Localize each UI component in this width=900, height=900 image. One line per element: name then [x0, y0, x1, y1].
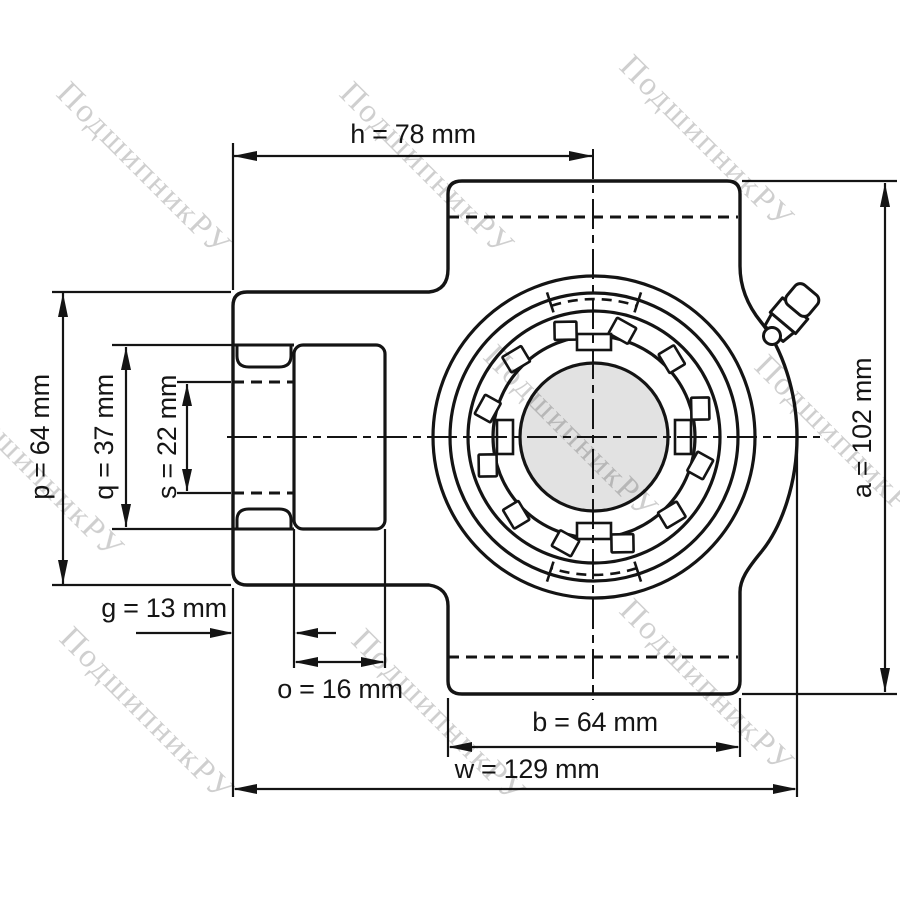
- dimension-label-b: b = 64 mm: [532, 707, 658, 737]
- technical-drawing: h = 78 mm a = 102 mm p = 64 mm q = 37 mm…: [0, 0, 900, 900]
- dimension-label-g: g = 13 mm: [101, 593, 227, 623]
- lock-washer-tab: [554, 322, 576, 340]
- drawing-canvas: h = 78 mm a = 102 mm p = 64 mm q = 37 mm…: [0, 0, 900, 900]
- dimension-label-q: q = 37 mm: [89, 374, 119, 500]
- dimension-label-s: s = 22 mm: [152, 375, 182, 499]
- lock-washer-tab: [691, 397, 709, 419]
- lock-washer-tab: [611, 534, 633, 552]
- lock-washer-tab: [479, 454, 497, 476]
